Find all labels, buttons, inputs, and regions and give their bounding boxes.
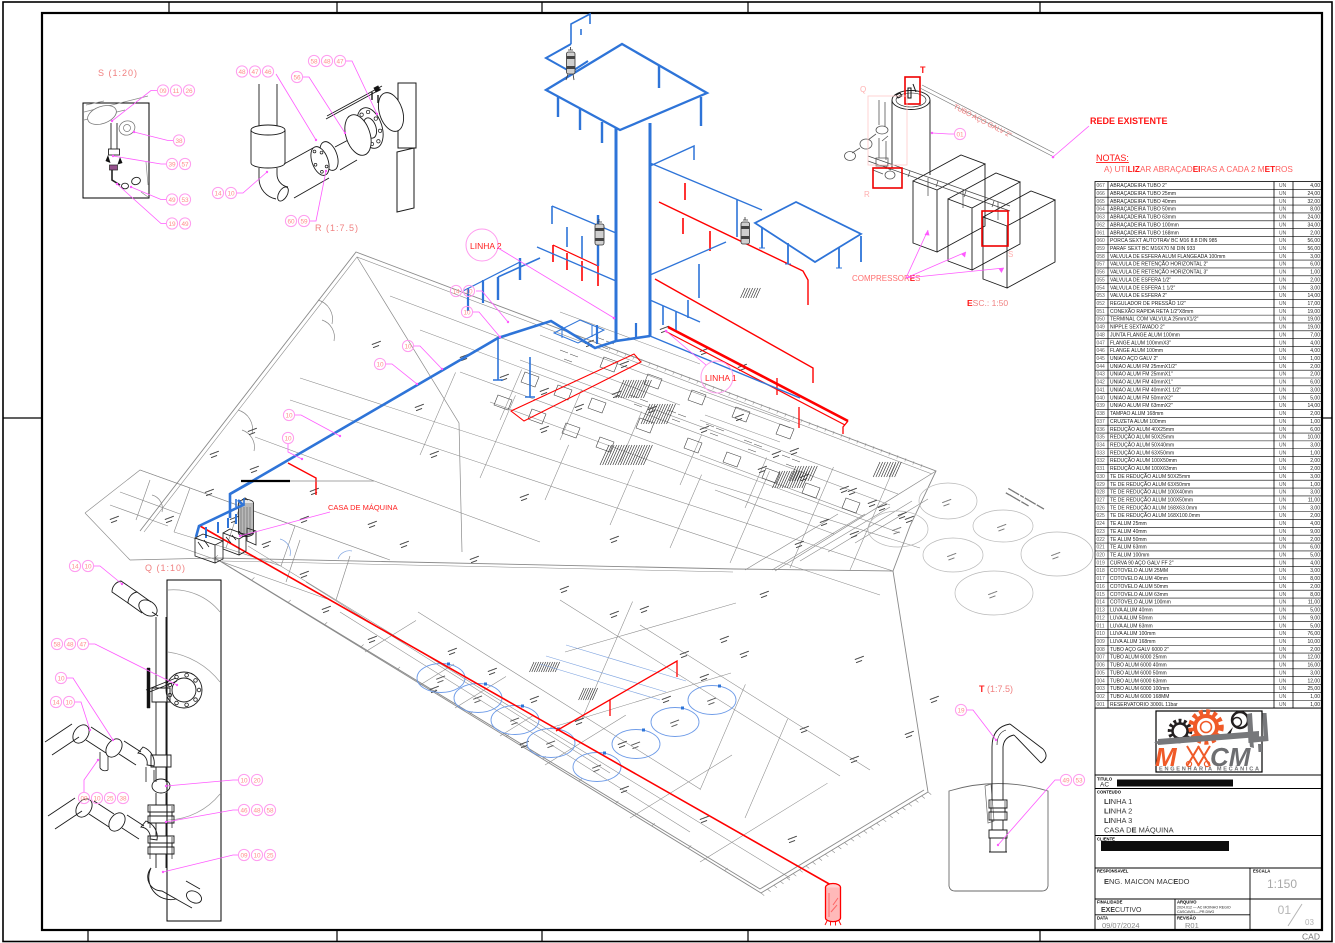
svg-text:VALVULA DE RETENÇÃO HORIZONTAL: VALVULA DE RETENÇÃO HORIZONTAL 2" [1110, 261, 1208, 268]
svg-text:26: 26 [185, 88, 193, 95]
svg-text:066: 066 [1097, 191, 1106, 197]
svg-text:UN: UN [1279, 458, 1287, 464]
svg-text:09: 09 [80, 795, 88, 802]
svg-text:01: 01 [1278, 903, 1292, 917]
svg-text:NOTAS:: NOTAS: [1096, 153, 1129, 163]
svg-text:4,00: 4,00 [1310, 348, 1320, 354]
svg-text:ABRAÇADEIRA TUBO 40mm: ABRAÇADEIRA TUBO 40mm [1110, 199, 1176, 205]
svg-text:3,00: 3,00 [1310, 568, 1320, 574]
svg-text:47: 47 [79, 641, 87, 648]
svg-text:UN: UN [1279, 450, 1287, 456]
svg-text:COTOVELO ALUM 100mm: COTOVELO ALUM 100mm [1110, 600, 1171, 606]
svg-text:058: 058 [1097, 254, 1106, 260]
svg-text:3,00: 3,00 [1310, 474, 1320, 480]
svg-text:UN: UN [1279, 670, 1287, 676]
svg-text:2,00: 2,00 [1310, 458, 1320, 464]
svg-text:UN: UN [1279, 694, 1287, 700]
svg-text:4,00: 4,00 [1310, 183, 1320, 189]
svg-text:1:150: 1:150 [1267, 877, 1297, 891]
svg-text:030: 030 [1097, 474, 1106, 480]
svg-text:UN: UN [1279, 568, 1287, 574]
svg-text:FLANGE ALUM 100mm: FLANGE ALUM 100mm [1110, 348, 1163, 354]
svg-text:FINALIDADE: FINALIDADE [1097, 900, 1123, 905]
svg-text:S (1:20): S (1:20) [98, 68, 138, 78]
svg-text:RESPONSAVEL: RESPONSAVEL [1097, 869, 1129, 874]
svg-text:1,00: 1,00 [1310, 270, 1320, 276]
svg-text:UN: UN [1279, 356, 1287, 362]
svg-text:1,00: 1,00 [1310, 482, 1320, 488]
svg-text:2,00: 2,00 [1310, 647, 1320, 653]
svg-text:VALVULA DE ESFERA 1 1/2": VALVULA DE ESFERA 1 1/2" [1110, 285, 1175, 291]
svg-text:063: 063 [1097, 215, 1106, 221]
svg-text:ESCALA: ESCALA [1253, 869, 1270, 874]
svg-text:052: 052 [1097, 301, 1106, 307]
svg-text:021: 021 [1097, 545, 1106, 551]
svg-text:8,00: 8,00 [1310, 592, 1320, 598]
svg-text:UN: UN [1279, 270, 1287, 276]
svg-text:VALVULA DE ESFERA 1/2": VALVULA DE ESFERA 1/2" [1110, 277, 1171, 283]
svg-text:UN: UN [1279, 411, 1287, 417]
svg-text:19,00: 19,00 [1307, 317, 1320, 323]
svg-text:048: 048 [1097, 332, 1106, 338]
svg-text:UN: UN [1279, 317, 1287, 323]
svg-text:CASA DE MÁQUINA: CASA DE MÁQUINA [328, 503, 398, 512]
svg-text:10,00: 10,00 [1307, 435, 1320, 441]
svg-text:UN: UN [1279, 301, 1287, 307]
svg-text:UN: UN [1279, 474, 1287, 480]
svg-text:016: 016 [1097, 584, 1106, 590]
svg-text:5,00: 5,00 [1310, 395, 1320, 401]
svg-text:UNIAO AÇO GALV 2": UNIAO AÇO GALV 2" [1110, 356, 1158, 362]
svg-text:3,00: 3,00 [1310, 670, 1320, 676]
svg-text:10: 10 [404, 343, 412, 350]
svg-text:ABRAÇADEIRA TUBO 100mm: ABRAÇADEIRA TUBO 100mm [1110, 222, 1179, 228]
svg-text:UN: UN [1279, 277, 1287, 283]
svg-text:6,00: 6,00 [1310, 545, 1320, 551]
svg-text:LUVA ALUM 63mm: LUVA ALUM 63mm [1110, 623, 1153, 629]
svg-text:46: 46 [264, 69, 272, 76]
svg-text:UN: UN [1279, 293, 1287, 299]
svg-text:UN: UN [1279, 403, 1287, 409]
svg-text:1,00: 1,00 [1310, 702, 1320, 708]
svg-text:19: 19 [957, 707, 965, 714]
svg-text:046: 046 [1097, 348, 1106, 354]
svg-text:UN: UN [1279, 655, 1287, 661]
svg-text:032: 032 [1097, 458, 1106, 464]
svg-text:VALVULA DE RETENÇÃO HORIZONTAL: VALVULA DE RETENÇÃO HORIZONTAL 3" [1110, 269, 1208, 276]
svg-text:VALVULA DE ESFERA ALUM FLANGEA: VALVULA DE ESFERA ALUM FLANGEADA 100mm [1110, 254, 1225, 260]
svg-text:ESC.: 1:50: ESC.: 1:50 [967, 298, 1008, 308]
svg-text:053: 053 [1097, 293, 1106, 299]
svg-text:32,00: 32,00 [1307, 199, 1320, 205]
svg-text:UN: UN [1279, 513, 1287, 519]
svg-text:38: 38 [119, 795, 127, 802]
svg-text:8,00: 8,00 [1310, 576, 1320, 582]
svg-text:PORCA SEXT AUTOTRAV BC M16 8.8: PORCA SEXT AUTOTRAV BC M16 8.8 DIN 985 [1110, 238, 1217, 244]
svg-text:34,00: 34,00 [1307, 222, 1320, 228]
svg-text:25: 25 [106, 795, 114, 802]
svg-text:UN: UN [1279, 372, 1287, 378]
svg-text:008: 008 [1097, 647, 1106, 653]
svg-text:UN: UN [1279, 537, 1287, 543]
svg-text:10: 10 [65, 699, 73, 706]
svg-text:48: 48 [253, 807, 261, 814]
svg-text:56: 56 [293, 74, 301, 81]
svg-text:056: 056 [1097, 270, 1106, 276]
svg-text:48: 48 [323, 58, 331, 65]
svg-text:CLIENTE: CLIENTE [1097, 837, 1115, 842]
svg-text:46: 46 [240, 807, 248, 814]
svg-text:14,00: 14,00 [1307, 403, 1320, 409]
svg-text:11: 11 [173, 88, 180, 95]
svg-text:004: 004 [1097, 678, 1106, 684]
svg-text:2,00: 2,00 [1310, 584, 1320, 590]
svg-text:10: 10 [57, 675, 65, 682]
svg-text:10: 10 [465, 288, 473, 295]
svg-text:3,00: 3,00 [1310, 490, 1320, 496]
svg-text:Q (1:10): Q (1:10) [145, 563, 186, 573]
svg-text:4,00: 4,00 [1310, 521, 1320, 527]
svg-text:REDE EXISTENTE: REDE EXISTENTE [1090, 116, 1168, 126]
svg-text:REDUÇÃO ALUM 100X63mm: REDUÇÃO ALUM 100X63mm [1110, 465, 1177, 472]
svg-text:TUBO ALUM 6000 63mm: TUBO ALUM 6000 63mm [1110, 678, 1167, 684]
svg-text:VALVULA DE ESFERA 2": VALVULA DE ESFERA 2" [1110, 293, 1167, 299]
svg-text:UN: UN [1279, 325, 1287, 331]
svg-text:14: 14 [52, 699, 60, 706]
svg-text:10: 10 [285, 412, 293, 419]
svg-text:7,00: 7,00 [1310, 332, 1320, 338]
svg-text:UN: UN [1279, 623, 1287, 629]
svg-text:19,00: 19,00 [1307, 309, 1320, 315]
svg-text:2,00: 2,00 [1310, 537, 1320, 543]
svg-text:014: 014 [1097, 600, 1106, 606]
svg-text:LUVA ALUM 100mm: LUVA ALUM 100mm [1110, 631, 1155, 637]
svg-text:LINHA 2: LINHA 2 [470, 241, 502, 251]
svg-text:10,00: 10,00 [1307, 639, 1320, 645]
svg-text:2,00: 2,00 [1310, 372, 1320, 378]
svg-text:UN: UN [1279, 395, 1287, 401]
svg-text:UN: UN [1279, 505, 1287, 511]
svg-text:COTOVELO ALUM 25MM: COTOVELO ALUM 25MM [1110, 568, 1168, 574]
svg-text:14,00: 14,00 [1307, 293, 1320, 299]
svg-text:LUVA ALUM 50mm: LUVA ALUM 50mm [1110, 615, 1153, 621]
svg-text:4,00: 4,00 [1310, 340, 1320, 346]
svg-text:003: 003 [1097, 686, 1106, 692]
svg-text:10: 10 [84, 563, 92, 570]
svg-text:051: 051 [1097, 309, 1106, 315]
svg-text:R (1:7.5): R (1:7.5) [315, 223, 359, 233]
svg-text:19: 19 [168, 221, 176, 228]
svg-text:UN: UN [1279, 663, 1287, 669]
svg-text:14: 14 [214, 190, 222, 197]
svg-text:JUNTA FLANGE ALUM 100mm: JUNTA FLANGE ALUM 100mm [1110, 332, 1180, 338]
svg-text:Q: Q [860, 85, 866, 94]
svg-text:03: 03 [1305, 918, 1314, 927]
svg-text:2,00: 2,00 [1310, 466, 1320, 472]
svg-text:COTOVELO ALUM 40mm: COTOVELO ALUM 40mm [1110, 576, 1168, 582]
svg-text:10: 10 [227, 190, 235, 197]
svg-text:DATA: DATA [1097, 916, 1108, 921]
svg-text:LINHA 1: LINHA 1 [705, 373, 737, 383]
svg-text:UN: UN [1279, 332, 1287, 338]
svg-text:09: 09 [159, 88, 167, 95]
svg-text:3,00: 3,00 [1310, 505, 1320, 511]
svg-text:UN: UN [1279, 498, 1287, 504]
svg-text:58: 58 [310, 58, 318, 65]
svg-text:24,00: 24,00 [1307, 191, 1320, 197]
svg-text:UN: UN [1279, 254, 1287, 260]
svg-text:25,00: 25,00 [1307, 686, 1320, 692]
svg-text:045: 045 [1097, 356, 1106, 362]
svg-text:1,00: 1,00 [1310, 419, 1320, 425]
svg-text:047: 047 [1097, 340, 1106, 346]
svg-text:COTOVELO ALUM 50mm: COTOVELO ALUM 50mm [1110, 584, 1168, 590]
svg-text:NIPPLE SEXTAVADO 2": NIPPLE SEXTAVADO 2" [1110, 325, 1165, 331]
svg-text:56,00: 56,00 [1307, 238, 1320, 244]
svg-text:TE ALUM 100mm: TE ALUM 100mm [1110, 553, 1149, 559]
svg-text:5,00: 5,00 [1310, 623, 1320, 629]
svg-text:018: 018 [1097, 568, 1106, 574]
svg-text:UN: UN [1279, 639, 1287, 645]
svg-text:R: R [864, 190, 870, 199]
svg-text:TUBO ALUM 6000 25mm: TUBO ALUM 6000 25mm [1110, 655, 1167, 661]
svg-text:ARQUIVO: ARQUIVO [1177, 900, 1197, 905]
svg-text:5,00: 5,00 [1310, 553, 1320, 559]
svg-text:LINHA 3: LINHA 3 [1104, 816, 1132, 825]
svg-text:COMPRESSORES: COMPRESSORES [852, 274, 920, 283]
svg-text:034: 034 [1097, 442, 1106, 448]
svg-text:11,00: 11,00 [1308, 600, 1320, 606]
svg-text:TE ALUM 25mm: TE ALUM 25mm [1110, 521, 1147, 527]
svg-text:TUBO AÇO GALV 6000 2": TUBO AÇO GALV 6000 2" [1110, 647, 1169, 653]
svg-text:UN: UN [1279, 246, 1287, 252]
svg-text:064: 064 [1097, 207, 1106, 213]
svg-text:9,00: 9,00 [1310, 529, 1320, 535]
svg-text:027: 027 [1097, 498, 1106, 504]
svg-text:3,00: 3,00 [1310, 285, 1320, 291]
svg-text:TAMPAO ALUM 168mm: TAMPAO ALUM 168mm [1110, 411, 1163, 417]
svg-text:TE DE REDUÇÃO ALUM 168X63.0mm: TE DE REDUÇÃO ALUM 168X63.0mm [1110, 504, 1197, 511]
svg-text:6,00: 6,00 [1310, 262, 1320, 268]
svg-text:TE DE REDUÇÃO ALUM 100X50mm: TE DE REDUÇÃO ALUM 100X50mm [1110, 497, 1193, 504]
svg-text:UN: UN [1279, 340, 1287, 346]
svg-text:47: 47 [251, 69, 259, 76]
svg-text:LINHA 2: LINHA 2 [1104, 807, 1132, 816]
svg-text:002: 002 [1097, 694, 1106, 700]
svg-text:UNIAO ALUM FM 25mmX1": UNIAO ALUM FM 25mmX1" [1110, 372, 1173, 378]
svg-text:036: 036 [1097, 427, 1106, 433]
svg-text:015: 015 [1097, 592, 1106, 598]
svg-text:CASA DE MÁQUINA: CASA DE MÁQUINA [1104, 826, 1174, 835]
svg-text:UN: UN [1279, 647, 1287, 653]
svg-text:CAD: CAD [1302, 932, 1320, 942]
svg-text:UN: UN [1279, 678, 1287, 684]
svg-text:3,00: 3,00 [1310, 387, 1320, 393]
svg-text:TE ALUM 50mm: TE ALUM 50mm [1110, 537, 1147, 543]
svg-text:006: 006 [1097, 663, 1106, 669]
svg-text:005: 005 [1097, 670, 1106, 676]
svg-text:026: 026 [1097, 505, 1106, 511]
svg-text:9,00: 9,00 [1310, 615, 1320, 621]
svg-text:ABRAÇADEIRA TUBO 50mm: ABRAÇADEIRA TUBO 50mm [1110, 207, 1176, 213]
svg-text:53: 53 [181, 197, 189, 204]
svg-text:REDUÇÃO ALUM 50X25mm: REDUÇÃO ALUM 50X25mm [1110, 434, 1174, 441]
svg-text:R01: R01 [1185, 921, 1199, 930]
svg-text:TUBO ALUM 6000 168MM: TUBO ALUM 6000 168MM [1110, 694, 1169, 700]
svg-text:1,00: 1,00 [1310, 356, 1320, 362]
svg-text:CASCAVEL—PR.DWG: CASCAVEL—PR.DWG [1177, 910, 1214, 914]
svg-text:UN: UN [1279, 380, 1287, 386]
svg-text:57: 57 [181, 161, 189, 168]
svg-text:TE DE REDUÇÃO ALUM 100X40mm: TE DE REDUÇÃO ALUM 100X40mm [1110, 489, 1193, 496]
svg-text:029: 029 [1097, 482, 1106, 488]
svg-text:022: 022 [1097, 537, 1106, 543]
svg-text:RESERVATORIO 3000L 11bar: RESERVATORIO 3000L 11bar [1110, 702, 1178, 708]
svg-text:UN: UN [1279, 482, 1287, 488]
svg-text:ABRAÇADEIRA TUBO 2": ABRAÇADEIRA TUBO 2" [1110, 183, 1167, 189]
svg-text:REDUÇÃO ALUM 100X50mm: REDUÇÃO ALUM 100X50mm [1110, 457, 1177, 464]
svg-text:025: 025 [1097, 513, 1106, 519]
svg-text:3,00: 3,00 [1310, 254, 1320, 260]
svg-text:39: 39 [168, 161, 176, 168]
svg-text:12,00: 12,00 [1307, 678, 1320, 684]
svg-text:UN: UN [1279, 615, 1287, 621]
svg-text:ABRAÇADEIRA TUBO 25mm: ABRAÇADEIRA TUBO 25mm [1110, 191, 1176, 197]
svg-text:042: 042 [1097, 380, 1106, 386]
svg-text:038: 038 [1097, 411, 1106, 417]
svg-text:UN: UN [1279, 285, 1287, 291]
svg-text:UN: UN [1279, 686, 1287, 692]
svg-text:UNIAO ALUM FM 40mmX1": UNIAO ALUM FM 40mmX1" [1110, 380, 1173, 386]
svg-text:039: 039 [1097, 403, 1106, 409]
svg-text:UN: UN [1279, 222, 1287, 228]
svg-text:CURVA 90 AÇO GALV FF 2": CURVA 90 AÇO GALV FF 2" [1110, 560, 1174, 566]
svg-text:UN: UN [1279, 592, 1287, 598]
svg-text:CRUZETA ALUM 100mm: CRUZETA ALUM 100mm [1110, 419, 1166, 425]
svg-text:UN: UN [1279, 521, 1287, 527]
svg-text:UN: UN [1279, 529, 1287, 535]
svg-text:EXECUTIVO: EXECUTIVO [1101, 907, 1142, 914]
svg-text:ABRAÇADEIRA TUBO 63mm: ABRAÇADEIRA TUBO 63mm [1110, 215, 1176, 221]
svg-text:S: S [1008, 250, 1013, 259]
svg-text:UN: UN [1279, 576, 1287, 582]
svg-text:061: 061 [1097, 230, 1106, 236]
svg-text:UN: UN [1279, 466, 1287, 472]
svg-text:48: 48 [66, 641, 74, 648]
svg-text:ENGENHARIA MECÂNICA: ENGENHARIA MECÂNICA [1159, 766, 1259, 773]
svg-text:UN: UN [1279, 207, 1287, 213]
svg-text:59: 59 [300, 218, 308, 225]
svg-text:UN: UN [1279, 545, 1287, 551]
svg-text:10: 10 [253, 852, 261, 859]
svg-text:16,00: 16,00 [1307, 663, 1320, 669]
svg-text:013: 013 [1097, 608, 1106, 614]
svg-text:53: 53 [1075, 777, 1083, 784]
svg-text:ABRAÇADEIRA TUBO 168mm: ABRAÇADEIRA TUBO 168mm [1110, 230, 1179, 236]
svg-text:COTOVELO ALUM 63mm: COTOVELO ALUM 63mm [1110, 592, 1168, 598]
svg-text:58: 58 [53, 641, 61, 648]
svg-text:UN: UN [1279, 183, 1287, 189]
svg-text:007: 007 [1097, 655, 1106, 661]
svg-text:17,00: 17,00 [1307, 301, 1320, 307]
svg-text:TUBO ALUM 6000 50mm: TUBO ALUM 6000 50mm [1110, 670, 1167, 676]
svg-text:10: 10 [284, 435, 292, 442]
svg-text:UN: UN [1279, 442, 1287, 448]
svg-text:UNIAO ALUM FM 25mmX1/2": UNIAO ALUM FM 25mmX1/2" [1110, 364, 1177, 370]
svg-text:059: 059 [1097, 246, 1106, 252]
svg-text:A) UTILIZAR ABRAÇADEIRAS A CA: A) UTILIZAR ABRAÇADEIRAS A CADA 2 METROS [1104, 165, 1293, 174]
svg-text:024: 024 [1097, 521, 1106, 527]
svg-text:UN: UN [1279, 702, 1287, 708]
svg-text:REGULADOR DE PRESSÃO 1/2": REGULADOR DE PRESSÃO 1/2" [1110, 300, 1186, 307]
svg-text:47: 47 [336, 58, 344, 65]
svg-text:2,00: 2,00 [1310, 364, 1320, 370]
svg-text:UN: UN [1279, 608, 1287, 614]
svg-text:AC: AC [1100, 782, 1109, 789]
svg-text:2,00: 2,00 [1310, 230, 1320, 236]
svg-text:TERMINAL COM VALVULA 25mmX1/2": TERMINAL COM VALVULA 25mmX1/2" [1110, 317, 1199, 323]
svg-text:UN: UN [1279, 427, 1287, 433]
svg-text:ENG. MAICON MACEDO: ENG. MAICON MACEDO [1104, 877, 1190, 886]
svg-text:2,00: 2,00 [1310, 277, 1320, 283]
svg-text:009: 009 [1097, 639, 1106, 645]
svg-text:054: 054 [1097, 285, 1106, 291]
svg-text:REDUÇÃO ALUM 50X40mm: REDUÇÃO ALUM 50X40mm [1110, 441, 1174, 448]
svg-text:012: 012 [1097, 615, 1106, 621]
svg-text:060: 060 [1097, 238, 1106, 244]
svg-text:065: 065 [1097, 199, 1106, 205]
svg-text:6,00: 6,00 [1310, 427, 1320, 433]
svg-text:2,00: 2,00 [1310, 411, 1320, 417]
svg-text:6,00: 6,00 [1310, 380, 1320, 386]
svg-text:UN: UN [1279, 387, 1287, 393]
svg-text:044: 044 [1097, 364, 1106, 370]
svg-text:UN: UN [1279, 419, 1287, 425]
svg-text:028: 028 [1097, 490, 1106, 496]
svg-text:TE ALUM 63mm: TE ALUM 63mm [1110, 545, 1147, 551]
svg-text:20: 20 [253, 777, 261, 784]
svg-text:UN: UN [1279, 191, 1287, 197]
svg-text:001: 001 [1097, 702, 1106, 708]
svg-text:1,00: 1,00 [1310, 450, 1320, 456]
svg-text:011: 011 [1097, 623, 1105, 629]
svg-text:CONTEUDO: CONTEUDO [1097, 790, 1122, 795]
svg-text:UN: UN [1279, 348, 1287, 354]
svg-text:LUVA ALUM 40mm: LUVA ALUM 40mm [1110, 608, 1153, 614]
svg-text:REDUÇÃO ALUM 40X25mm: REDUÇÃO ALUM 40X25mm [1110, 426, 1174, 433]
svg-text:TE ALUM 40mm: TE ALUM 40mm [1110, 529, 1147, 535]
svg-text:035: 035 [1097, 435, 1106, 441]
svg-text:19,00: 19,00 [1307, 325, 1320, 331]
svg-text:01: 01 [956, 131, 964, 138]
svg-text:UN: UN [1279, 230, 1287, 236]
svg-text:057: 057 [1097, 262, 1106, 268]
svg-text:UN: UN [1279, 215, 1287, 221]
svg-text:58: 58 [266, 807, 274, 814]
svg-text:14: 14 [452, 288, 460, 295]
svg-text:UNIAO ALUM FM 63mmX2": UNIAO ALUM FM 63mmX2" [1110, 403, 1173, 409]
svg-text:TE DE REDUÇÃO ALUM 168X100.0mm: TE DE REDUÇÃO ALUM 168X100.0mm [1110, 512, 1200, 519]
svg-text:5,00: 5,00 [1310, 608, 1320, 614]
svg-text:031: 031 [1097, 466, 1106, 472]
svg-text:FLANGE ALUM 100mmX3": FLANGE ALUM 100mmX3" [1110, 340, 1171, 346]
svg-text:09/07/2024: 09/07/2024 [1102, 921, 1140, 930]
svg-text:037: 037 [1097, 419, 1106, 425]
svg-text:050: 050 [1097, 317, 1106, 323]
svg-text:UN: UN [1279, 600, 1287, 606]
svg-text:UN: UN [1279, 560, 1287, 566]
svg-text:UNIAO ALUM FM 40mmX1 1/2": UNIAO ALUM FM 40mmX1 1/2" [1110, 387, 1181, 393]
